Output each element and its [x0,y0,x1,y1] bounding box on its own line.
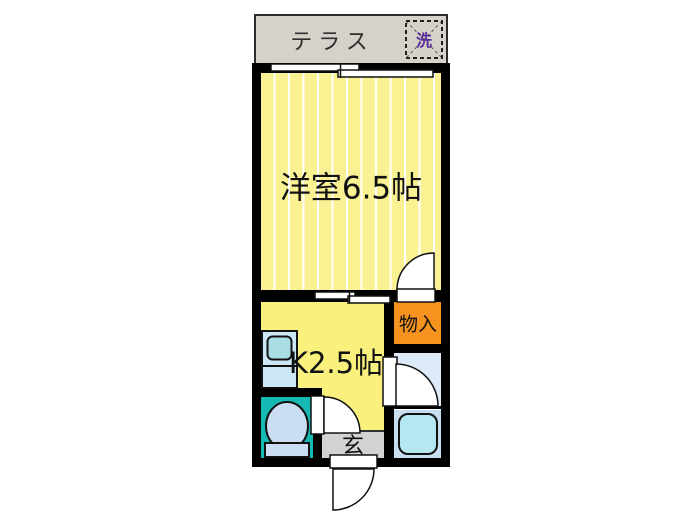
main-room-label: 洋室6.5帖 [280,163,422,208]
front-door-swing-icon [330,455,377,510]
closet-door-swing-icon [397,253,435,302]
toilet-icon [265,402,309,457]
sliding-window-icon [271,63,433,78]
floorplan: テラス 洗 洋室6.5帖 K2.5帖 物入 玄 [0,0,700,525]
terrace-label: テラス [290,24,374,56]
sliding-door-icon [315,291,390,303]
washer-label: 洗 [416,27,432,51]
bathtub-icon [399,414,437,454]
kitchen-label: K2.5帖 [289,340,383,382]
entrance-label: 玄 [342,428,364,460]
bathroom-door-swing-icon [383,357,438,406]
closet-label: 物入 [399,310,437,337]
